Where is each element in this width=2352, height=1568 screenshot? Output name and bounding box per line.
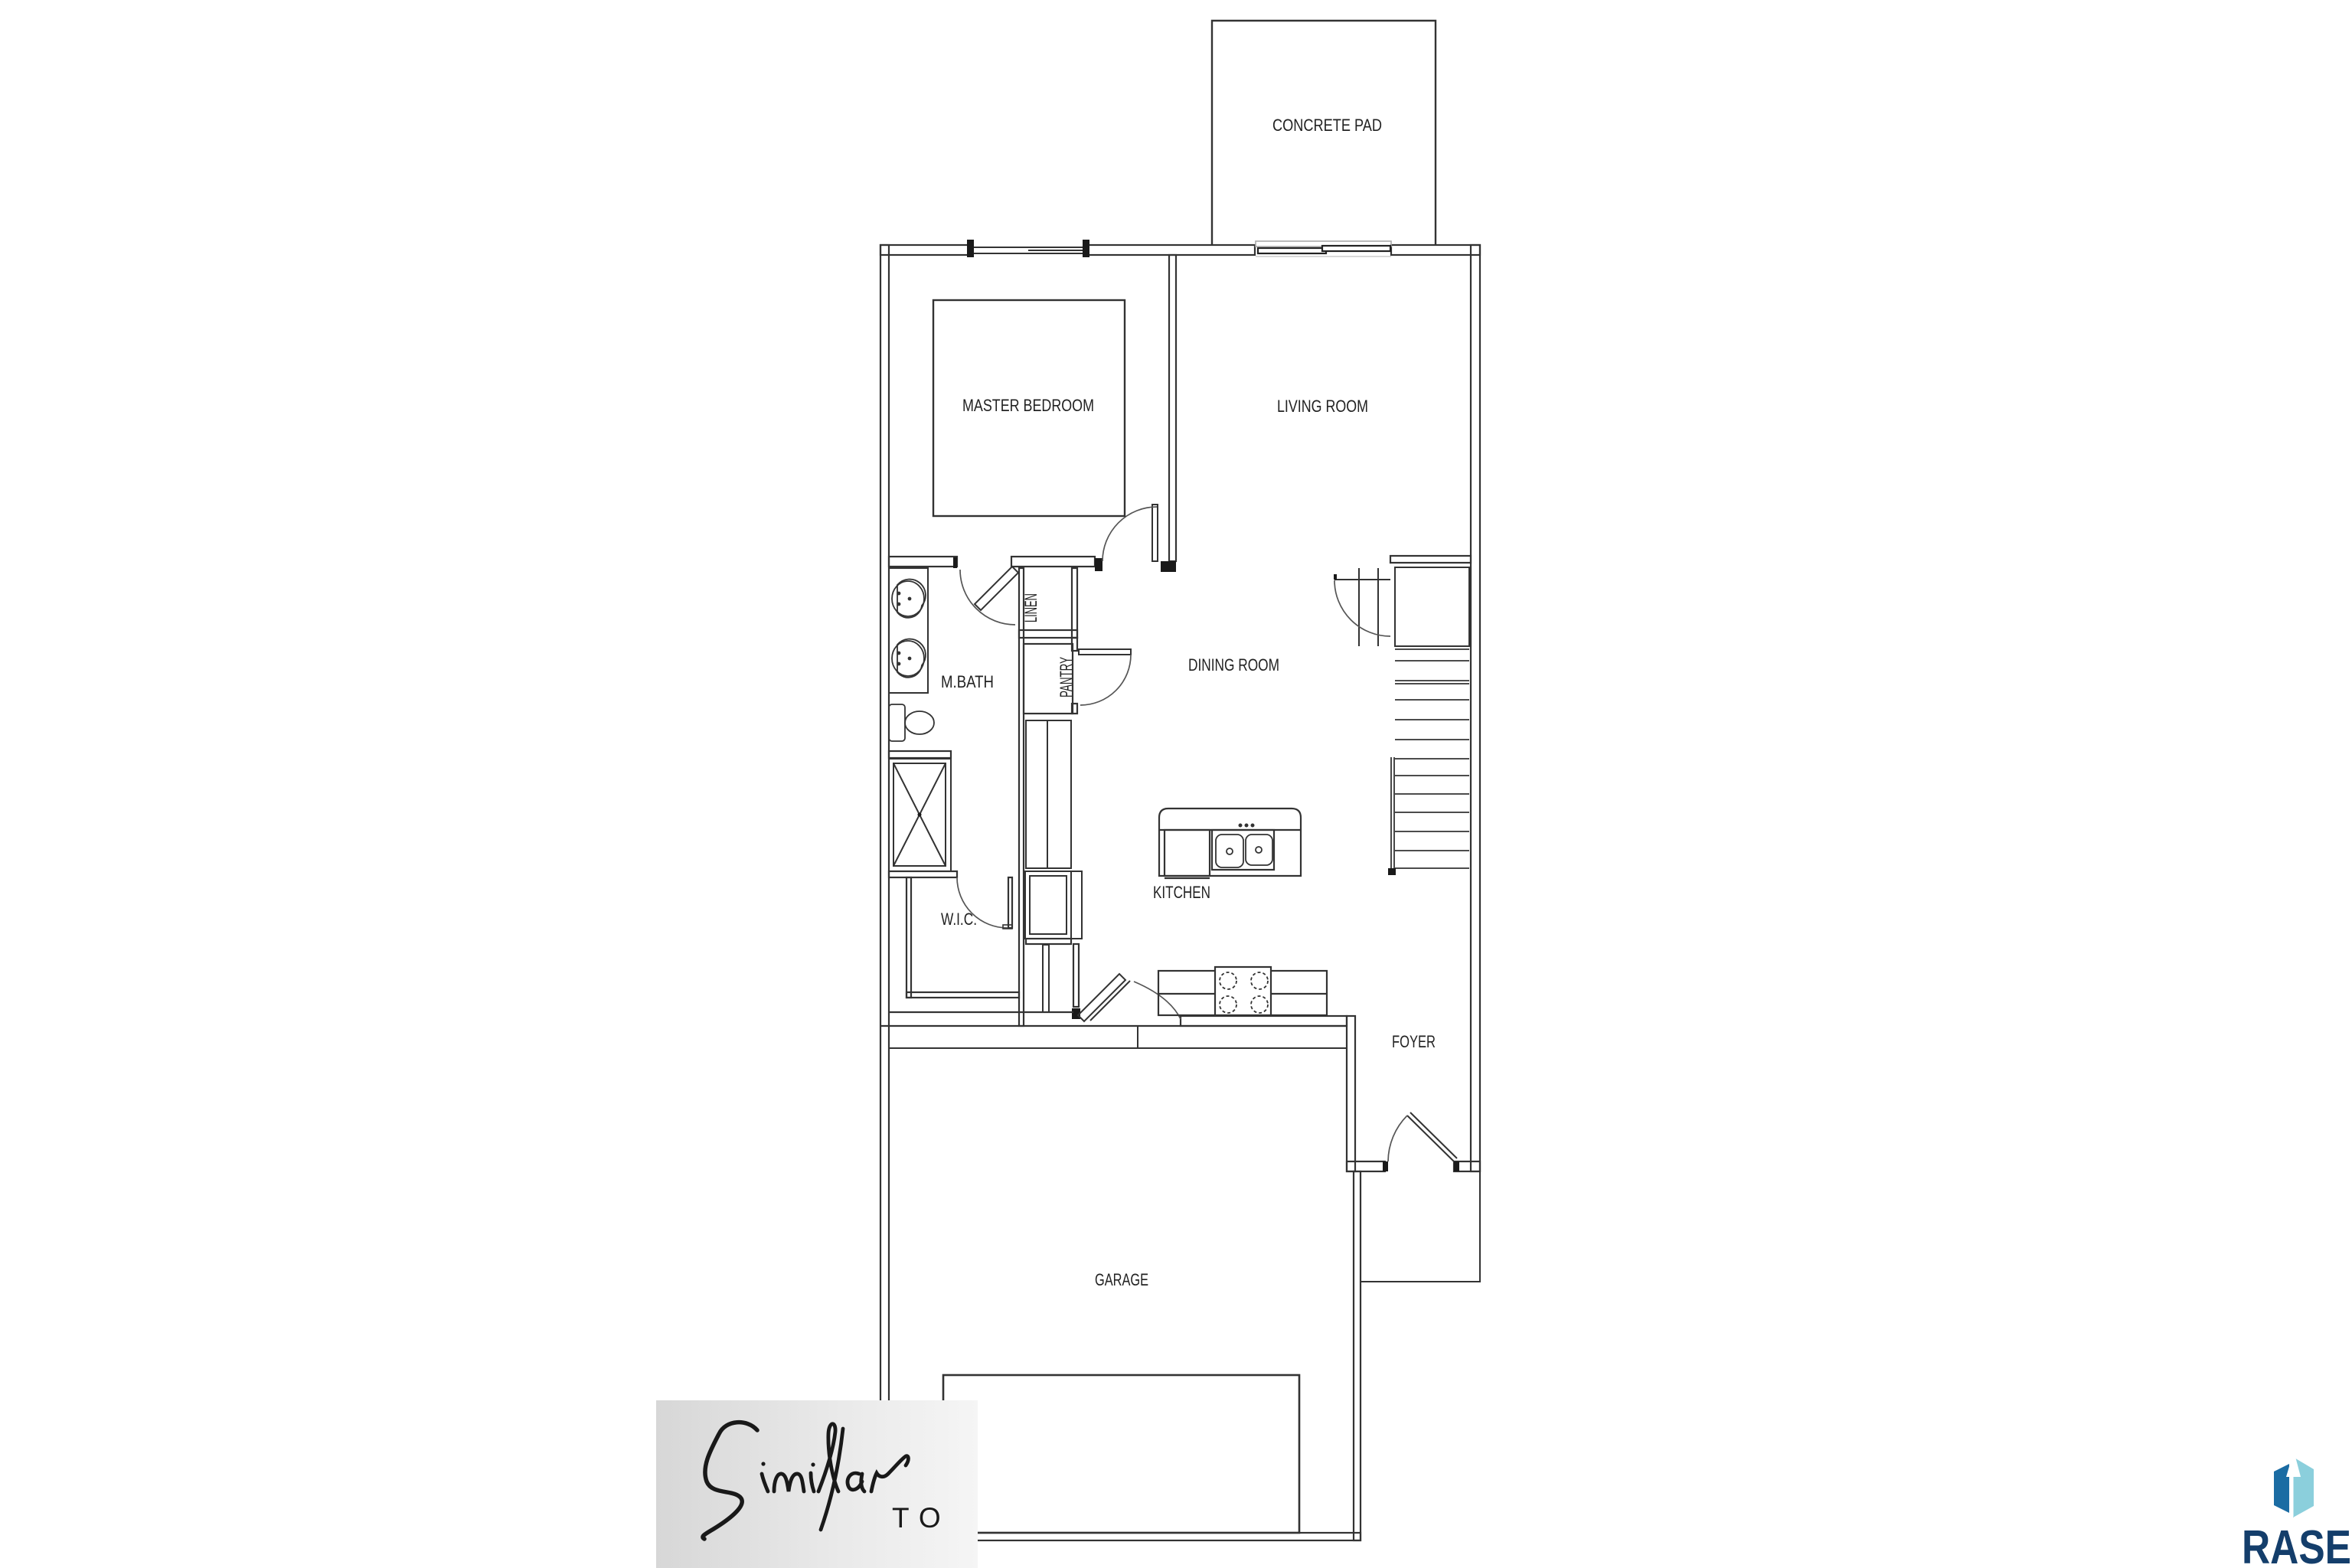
svg-text:GARAGE: GARAGE [1095, 1270, 1148, 1289]
svg-text:KITCHEN: KITCHEN [1153, 883, 1210, 902]
svg-text:TO: TO [892, 1502, 951, 1534]
svg-text:M.BATH: M.BATH [941, 672, 994, 691]
svg-text:DINING ROOM: DINING ROOM [1188, 655, 1279, 675]
svg-text:PANTRY: PANTRY [1057, 657, 1076, 697]
svg-text:LIVING ROOM: LIVING ROOM [1277, 397, 1368, 416]
svg-text:W.I.C.: W.I.C. [941, 910, 977, 929]
svg-text:FOYER: FOYER [1392, 1032, 1436, 1051]
svg-text:LINEN: LINEN [1021, 593, 1040, 622]
svg-text:CONCRETE PAD: CONCRETE PAD [1272, 116, 1382, 135]
svg-text:MASTER BEDROOM: MASTER BEDROOM [962, 396, 1094, 415]
svg-text:RASE: RASE [2242, 1521, 2351, 1568]
